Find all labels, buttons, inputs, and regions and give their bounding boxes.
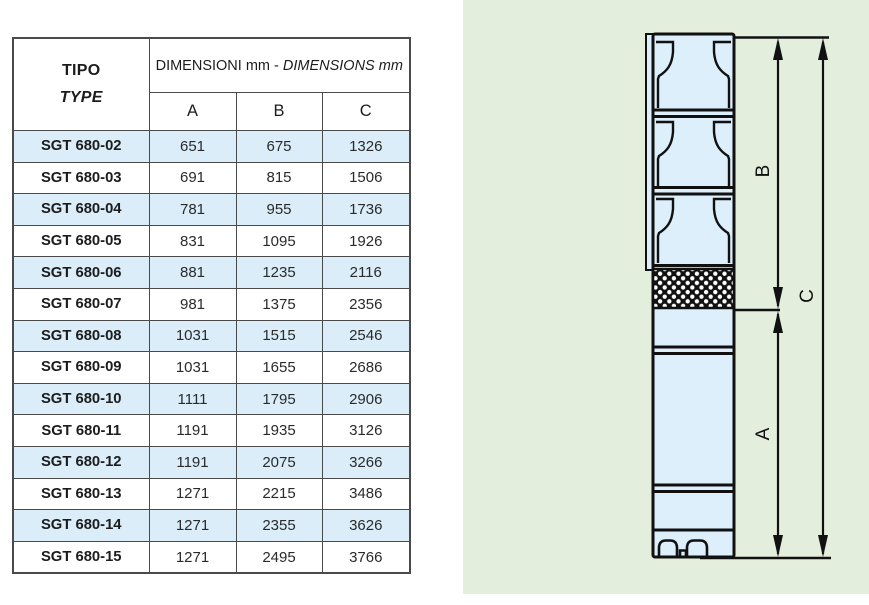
dimension-line-a [773, 311, 783, 557]
dim-label-b: B [753, 165, 774, 178]
catalog-page: { "table": { "header": { "tipo": "TIPO",… [0, 0, 869, 605]
pump-diagram: B A C [0, 0, 869, 605]
suction-strainer [653, 269, 734, 308]
dimension-line-c [818, 38, 828, 557]
dimension-line-b [773, 38, 783, 309]
dim-label-a: A [753, 427, 774, 440]
dim-label-c: C [797, 289, 818, 303]
